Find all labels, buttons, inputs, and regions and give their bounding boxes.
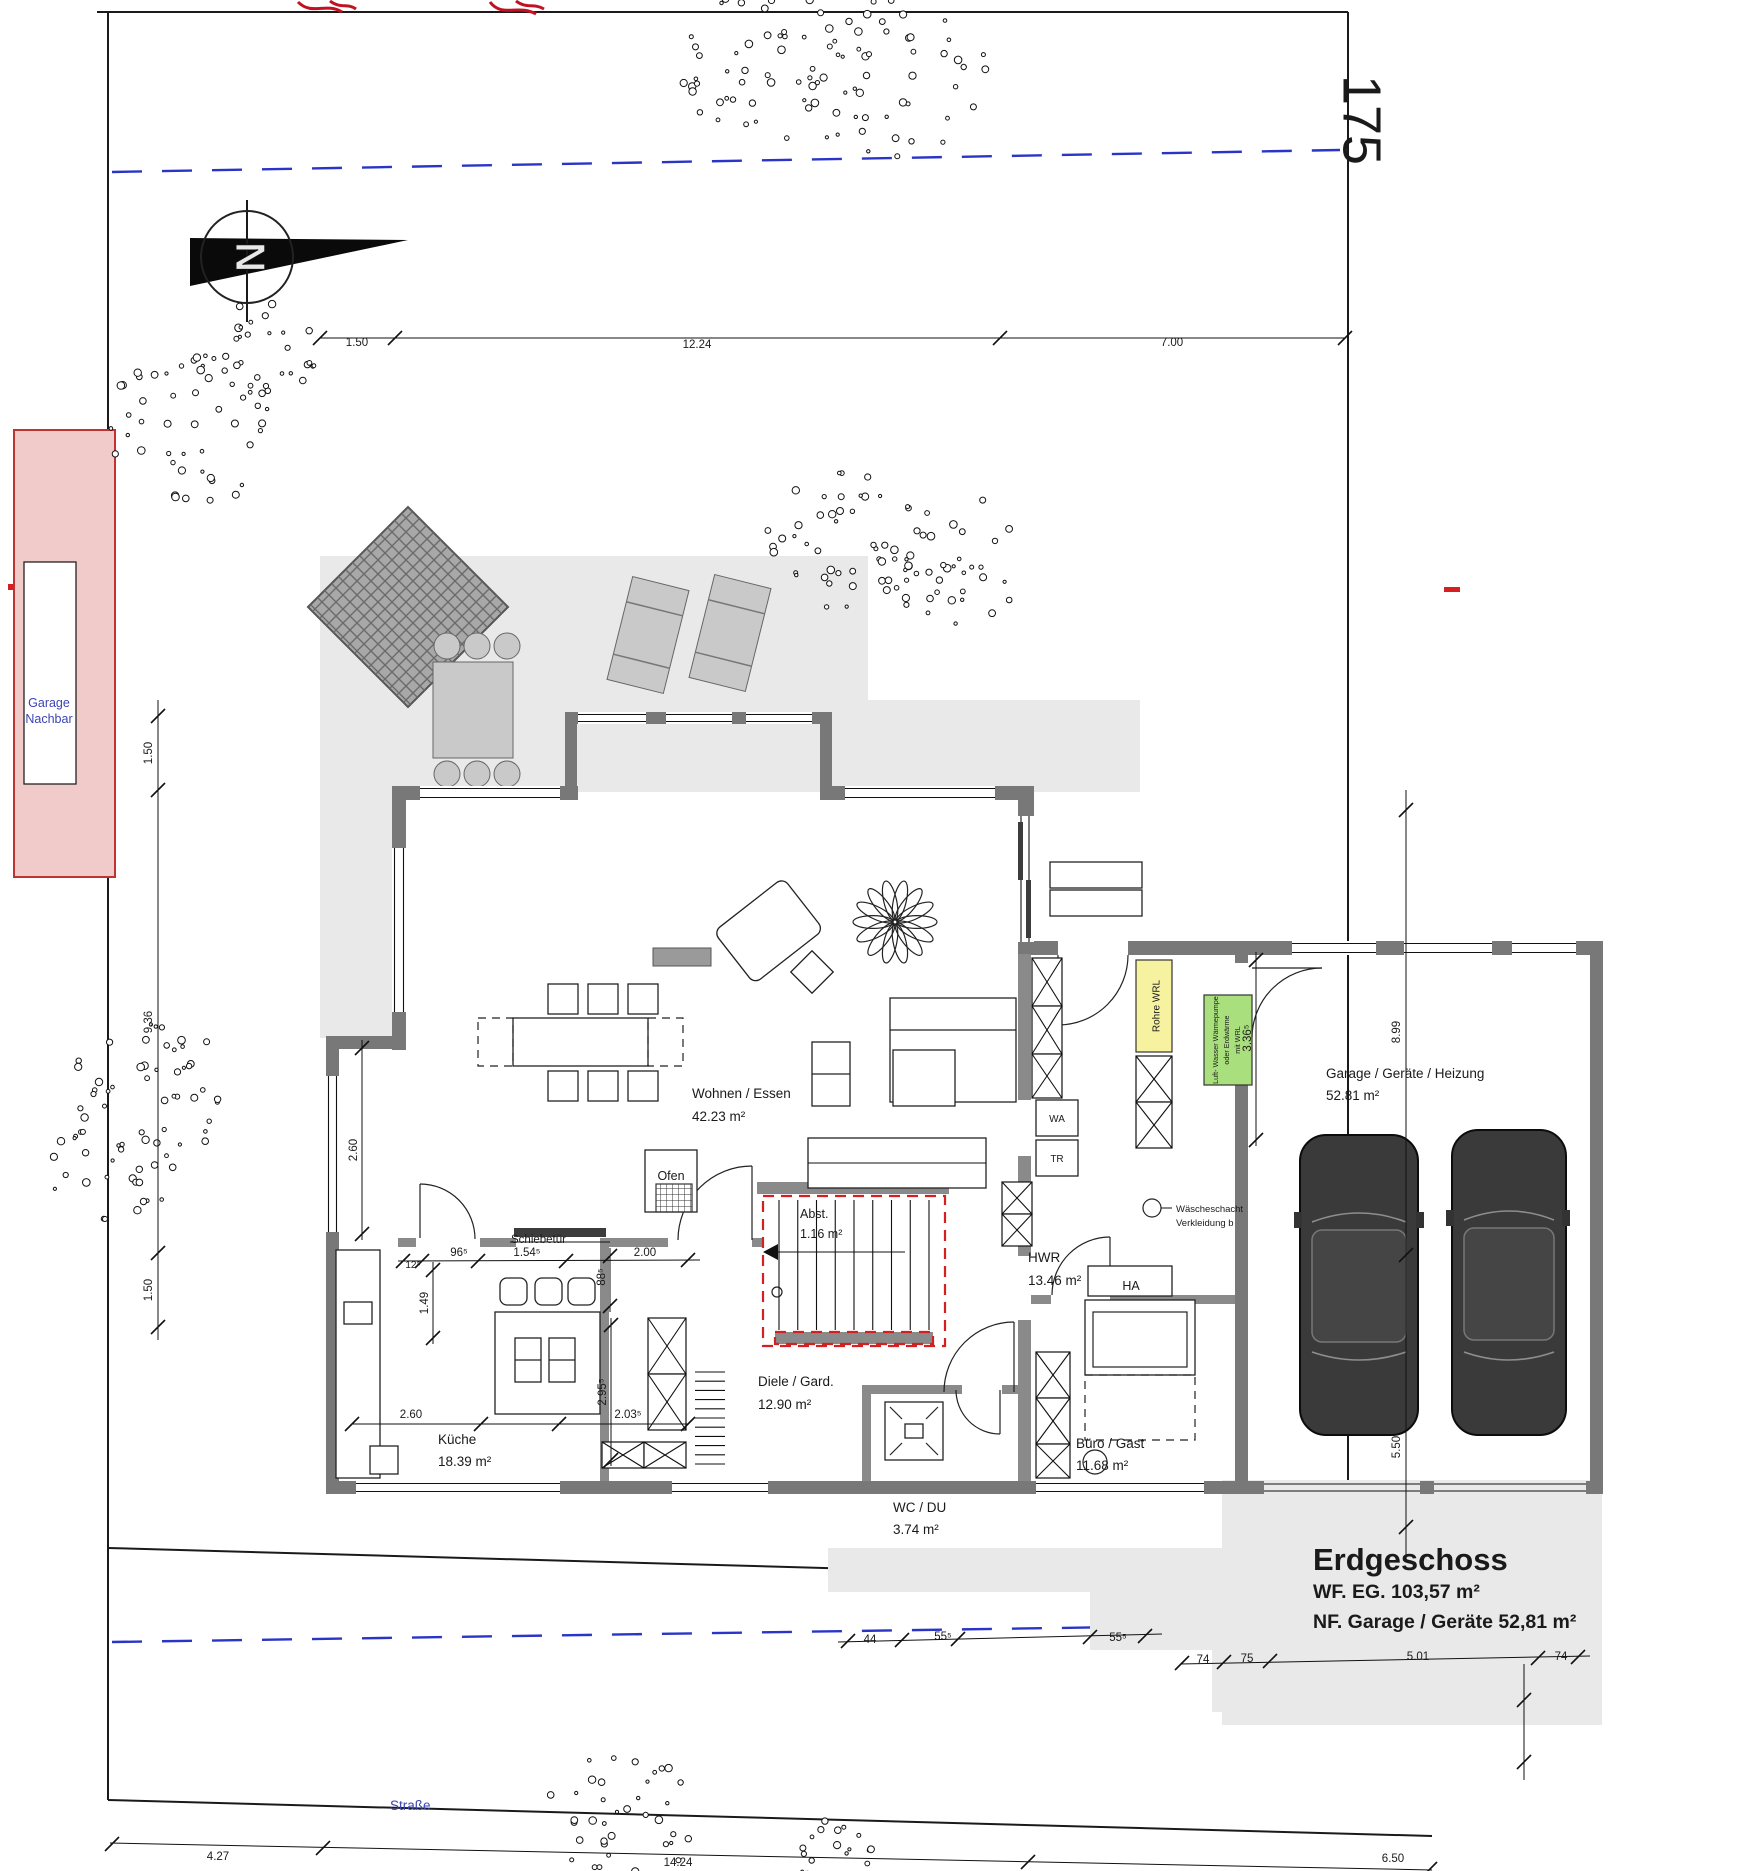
label-rohre-wrl: Rohre WRL [1152,979,1163,1032]
shower [885,1402,943,1460]
window [1512,941,1576,955]
tree [75,1023,221,1147]
label-waescheschacht-2: Verkleidung b [1176,1218,1234,1229]
dim-mid-555a: 55⁵ [934,1631,952,1643]
tree [680,0,847,140]
entrance-porch-steps [1050,862,1142,916]
dim-bot-427: 4.27 [207,1851,229,1863]
dim-int-149: 1.49 [419,1292,431,1314]
dim-left-3: 1.50 [143,1279,155,1301]
room-area-kueche: 18.39 m² [438,1454,492,1469]
window [746,712,812,724]
dim-right-1: 8.99 [1391,1021,1403,1043]
terrace-sideboard [653,948,711,966]
shaft-box [1002,1182,1032,1214]
tree [878,497,1012,625]
room-label-wohnen: Wohnen / Essen [692,1086,791,1101]
setback-line-bottom [112,1626,1190,1642]
dim-int-965: 96⁵ [450,1247,468,1259]
shaft-box [1136,1056,1172,1102]
label-waermepumpe-1: Luft- Wasser Wärmepumpe [1211,996,1220,1084]
window [1036,1481,1204,1494]
tree [50,1129,176,1221]
room-label-abst: Abst. [800,1207,829,1221]
label-waescheschacht-1: Wäscheschacht [1176,1204,1243,1215]
room-area-wohnen: 42.23 m² [692,1109,746,1124]
window [392,848,406,1012]
room-label-diele: Diele / Gard. [758,1374,834,1389]
kitchen-door [420,1184,475,1239]
plot-number: 175 [1332,75,1392,165]
window [326,1076,339,1232]
north-arrow: N [190,200,408,322]
car [1446,1130,1570,1435]
dim-int-125: 12⁵ [405,1260,420,1271]
neighbor-garage-label-2: Nachbar [25,712,72,726]
cabinet-box [602,1442,644,1468]
cabinet-box [648,1318,686,1374]
tree [193,300,316,408]
shaft-box [1032,1054,1062,1098]
shaft-box [1002,1214,1032,1246]
dim-mid-44: 44 [864,1634,877,1646]
floor-plan-sheet: N 175 [0,0,1744,1871]
dim-int-200: 2.00 [634,1247,656,1259]
room-area-diele: 12.90 m² [758,1397,812,1412]
dim-int-2955: 2.95⁵ [597,1378,609,1405]
room-label-buero: Büro / Gast [1076,1436,1145,1451]
dim-int-1545: 1.54⁵ [513,1247,540,1259]
dim-int-3365: 3.36⁵ [1242,1024,1254,1051]
dim-top-2: 12.24 [683,339,712,351]
room-label-wc: WC / DU [893,1500,946,1515]
window [845,786,995,800]
label-waermepumpe-2: oder Erdwärme [1222,1015,1231,1064]
dim-gar-75: 75 [1241,1653,1254,1665]
kitchen-island [495,1278,600,1414]
north-letter: N [227,242,274,272]
laundry-chute-symbol [1143,1199,1172,1217]
outdoor-dining-set [433,633,520,787]
dim-left-2: 9.36 [143,1011,155,1033]
label-tr: TR [1050,1154,1063,1165]
window [356,1481,560,1494]
window [1292,941,1376,955]
dim-top-3: 7.00 [1161,337,1183,349]
cabinet-box [1036,1398,1070,1444]
cabinet-box [648,1374,686,1430]
dim-right-2: 5.50 [1391,1436,1403,1458]
neighbor-garage-label-1: Garage [28,696,70,710]
staircase [763,1138,986,1346]
red-boundary-marker-right [1444,587,1460,592]
shaft-box [1032,1006,1062,1054]
window [672,1481,768,1494]
dim-bot-650: 6.50 [1382,1853,1404,1865]
title-wf-line: WF. EG. 103,57 m² [1313,1581,1480,1603]
cabinet-box [1036,1352,1070,1398]
wc-door [956,1390,1000,1434]
title-nf-line: NF. Garage / Geräte 52,81 m² [1313,1611,1577,1633]
cabinet-box [644,1442,686,1468]
room-area-garage: 52.81 m² [1326,1088,1380,1103]
room-area-hwr: 13.46 m² [1028,1273,1082,1288]
dim-int-260v: 2.60 [348,1139,360,1161]
label-wa: WA [1049,1114,1065,1125]
cabinet-box [1036,1444,1070,1478]
terrace-sliding-door [1016,816,1034,942]
dim-gar-74b: 74 [1555,1651,1568,1663]
dim-int-885: 88⁵ [596,1268,608,1286]
dining-table [478,984,683,1101]
room-area-buero: 11.68 m² [1076,1458,1129,1473]
dim-int-260h: 2.60 [400,1409,422,1421]
tv-board [812,1042,850,1106]
garage-door-from-hall [1252,968,1322,1038]
pantry-shelves [695,1372,725,1464]
side-table [791,951,833,993]
dim-gar-501: 5.01 [1407,1651,1429,1663]
neighbor-garage [14,430,115,877]
floor-plan-drawing: N 175 [0,0,1744,1871]
dim-top-1: 1.50 [346,337,368,349]
car [1294,1135,1424,1435]
window [420,786,560,800]
sofa [890,998,1016,1106]
street-label: Straße [390,1798,431,1813]
tree [109,354,271,503]
label-schiebetuer: Schiebetür [511,1234,566,1246]
window [666,712,732,724]
title-erdgeschoss: Erdgeschoss [1313,1542,1508,1577]
shaft-box [1136,1102,1172,1148]
tree [800,1818,874,1871]
window [1404,941,1492,955]
room-label-hwr: HWR [1028,1250,1060,1265]
setback-line-top [112,150,1340,172]
dim-bot-1424: 14.24 [664,1857,693,1869]
window [578,712,646,724]
label-ha: HA [1122,1279,1140,1293]
plant [853,880,937,965]
label-waermepumpe-3: mit WRL [1233,1026,1242,1054]
room-label-kueche: Küche [438,1432,476,1447]
room-label-garage: Garage / Geräte / Heizung [1326,1066,1484,1081]
hwr-door [944,1322,1014,1392]
shaft-box [1032,958,1062,1006]
guest-bed [1085,1300,1195,1440]
label-ofen: Ofen [657,1169,684,1183]
kitchen-counter [336,1250,398,1478]
room-area-abst: 1.16 m² [800,1227,842,1241]
room-area-wc: 3.74 m² [893,1522,939,1537]
dim-int-2035: 2.03⁵ [614,1409,641,1421]
dim-left-1: 1.50 [143,742,155,764]
entrance-door [1058,955,1128,1025]
dim-gar-74a: 74 [1197,1654,1210,1666]
dim-mid-555b: 55⁵ [1109,1632,1127,1644]
